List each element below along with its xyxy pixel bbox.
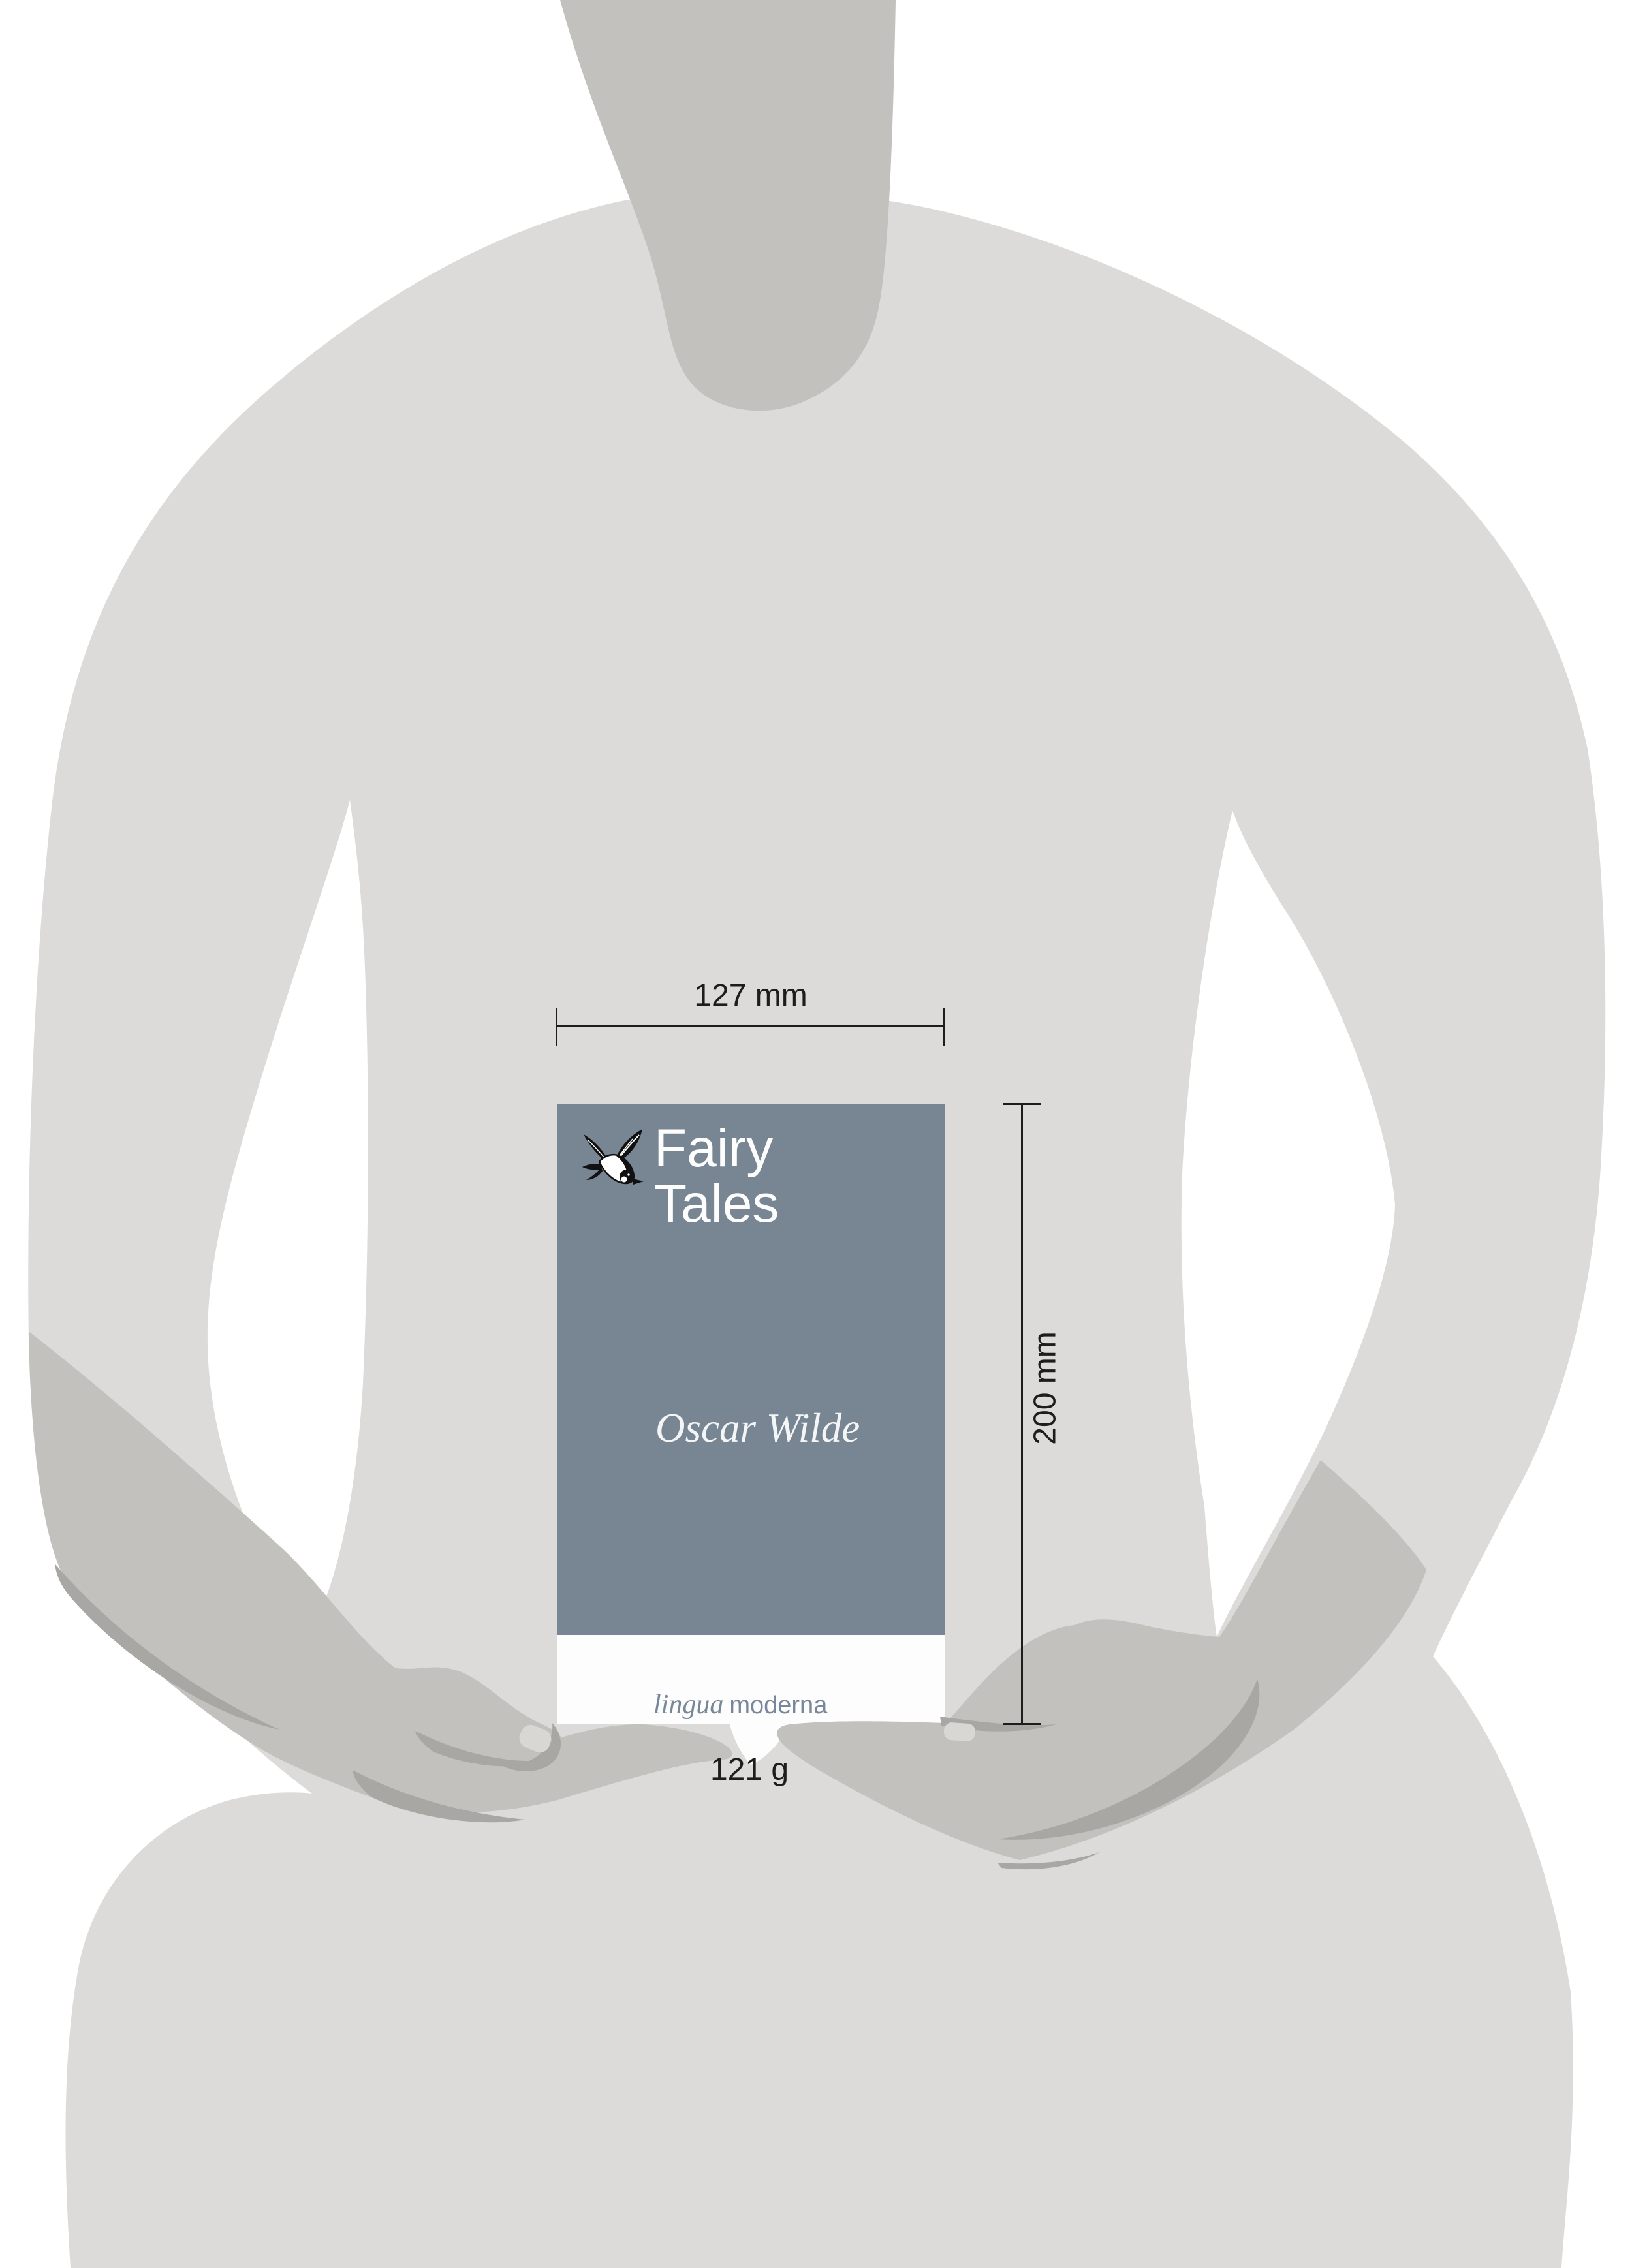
height-tick-bottom (1003, 1723, 1041, 1725)
height-dimension-label: 200 mm (1028, 1331, 1063, 1444)
weight-label: 121 g (710, 1752, 789, 1788)
right-hand (777, 1460, 1426, 1860)
right-fingernail (943, 1722, 976, 1741)
width-tick-right (943, 1008, 945, 1046)
width-dimension-line (557, 1025, 945, 1027)
width-tick-left (556, 1008, 557, 1046)
width-dimension-label: 127 mm (694, 978, 807, 1014)
height-dimension-line (1021, 1104, 1023, 1724)
hands-overlay (0, 0, 1632, 2268)
left-hand (29, 1331, 732, 1812)
height-tick-top (1003, 1103, 1041, 1105)
product-dimension-illustration: Fairy Tales Oscar Wilde linguamoderna 12… (0, 0, 1632, 2268)
